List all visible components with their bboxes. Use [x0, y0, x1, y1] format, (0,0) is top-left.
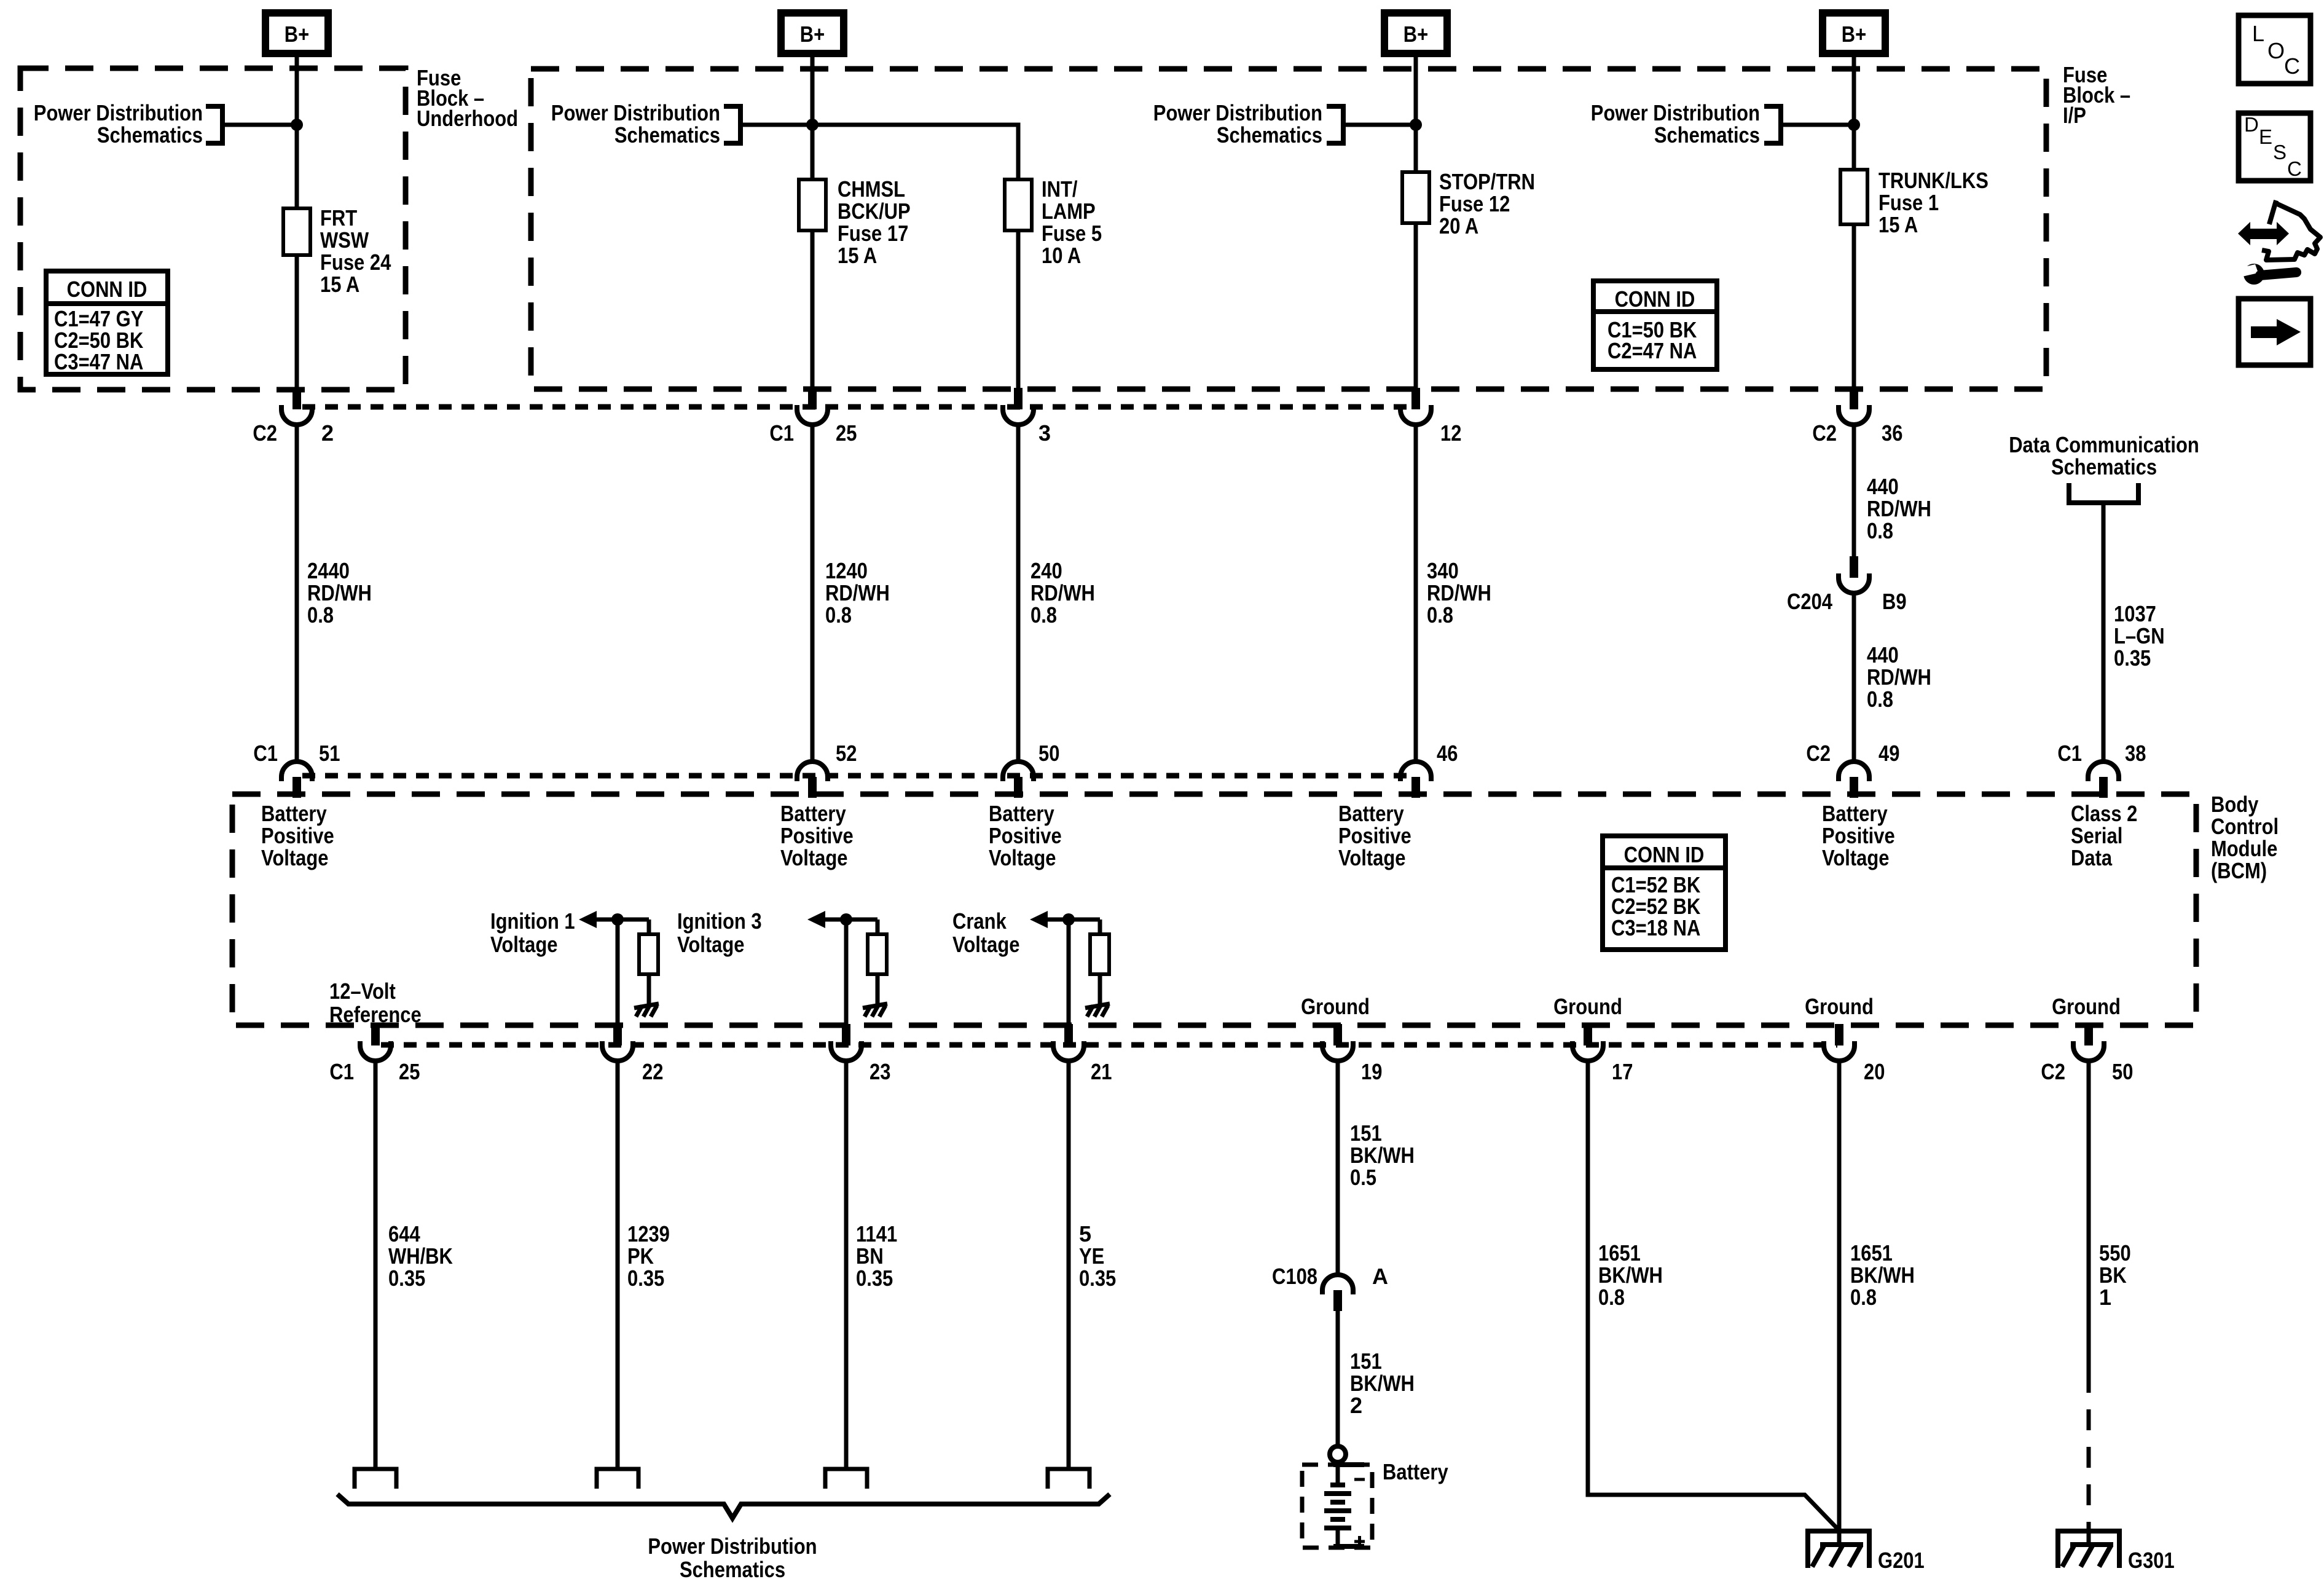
- svg-text:(BCM): (BCM): [2211, 858, 2267, 883]
- svg-text:BN: BN: [856, 1243, 884, 1269]
- svg-text:1651: 1651: [1598, 1240, 1641, 1266]
- svg-text:WH/BK: WH/BK: [388, 1243, 453, 1269]
- svg-text:Positive: Positive: [1338, 823, 1411, 848]
- svg-text:Positive: Positive: [780, 823, 854, 848]
- svg-text:340: 340: [1427, 558, 1459, 583]
- svg-text:C1: C1: [253, 741, 278, 766]
- svg-text:Positive: Positive: [1822, 823, 1895, 848]
- svg-text:151: 151: [1350, 1349, 1382, 1374]
- svg-text:Positive: Positive: [989, 823, 1062, 848]
- svg-text:22: 22: [642, 1059, 663, 1084]
- svg-text:RD/WH: RD/WH: [825, 580, 890, 605]
- svg-text:B9: B9: [1882, 589, 1907, 614]
- svg-text:12: 12: [1440, 420, 1461, 446]
- svg-text:Body: Body: [2211, 792, 2258, 817]
- svg-text:Ground: Ground: [2052, 994, 2121, 1019]
- svg-text:2: 2: [321, 420, 334, 446]
- svg-text:Voltage: Voltage: [780, 845, 848, 870]
- svg-text:Module: Module: [2211, 836, 2277, 861]
- svg-text:BCK/UP: BCK/UP: [838, 199, 911, 224]
- svg-text:17: 17: [1612, 1059, 1633, 1084]
- svg-text:CONN ID: CONN ID: [1624, 842, 1705, 867]
- svg-text:240: 240: [1030, 558, 1062, 583]
- svg-text:50: 50: [2112, 1059, 2133, 1084]
- svg-text:1239: 1239: [627, 1221, 670, 1246]
- svg-text:Ground: Ground: [1301, 994, 1370, 1019]
- svg-text:Power Distribution: Power Distribution: [648, 1534, 817, 1559]
- svg-text:C: C: [2287, 157, 2302, 180]
- svg-text:WSW: WSW: [320, 227, 369, 253]
- svg-text:RD/WH: RD/WH: [1867, 664, 1931, 690]
- svg-text:Ignition 1: Ignition 1: [490, 908, 575, 934]
- svg-text:0.8: 0.8: [1030, 602, 1057, 628]
- svg-text:2: 2: [1350, 1393, 1362, 1418]
- svg-text:51: 51: [319, 741, 340, 766]
- svg-text:440: 440: [1867, 642, 1899, 667]
- svg-text:RD/WH: RD/WH: [307, 580, 372, 605]
- svg-text:2440: 2440: [307, 558, 350, 583]
- svg-text:Power Distribution: Power Distribution: [1153, 100, 1322, 125]
- svg-text:Schematics: Schematics: [2051, 454, 2157, 479]
- svg-text:550: 550: [2099, 1240, 2131, 1266]
- svg-text:Battery: Battery: [1383, 1459, 1448, 1484]
- svg-text:B+: B+: [285, 22, 309, 47]
- svg-text:Schematics: Schematics: [1217, 122, 1322, 148]
- svg-text:Crank: Crank: [952, 908, 1007, 934]
- svg-text:CHMSL: CHMSL: [838, 176, 905, 202]
- svg-text:L–GN: L–GN: [2114, 623, 2165, 648]
- svg-text:C2: C2: [2041, 1059, 2065, 1084]
- svg-text:0.8: 0.8: [307, 602, 334, 628]
- svg-text:19: 19: [1361, 1059, 1382, 1084]
- svg-text:BK/WH: BK/WH: [1850, 1262, 1915, 1288]
- svg-text:C1: C1: [329, 1059, 354, 1084]
- svg-text:C3=47 NA: C3=47 NA: [54, 349, 143, 374]
- svg-text:Fuse 24: Fuse 24: [320, 250, 391, 275]
- svg-text:FRT: FRT: [320, 205, 357, 230]
- svg-text:151: 151: [1350, 1120, 1382, 1146]
- svg-text:O: O: [2267, 38, 2285, 63]
- svg-text:46: 46: [1437, 741, 1458, 766]
- svg-text:Battery: Battery: [261, 801, 327, 826]
- svg-text:I/P: I/P: [2063, 103, 2086, 128]
- svg-text:Control: Control: [2211, 814, 2279, 839]
- svg-text:C108: C108: [1272, 1264, 1317, 1289]
- svg-text:0.35: 0.35: [856, 1266, 893, 1291]
- svg-text:YE: YE: [1079, 1243, 1104, 1269]
- svg-text:Battery: Battery: [989, 801, 1054, 826]
- svg-text:Power Distribution: Power Distribution: [551, 100, 720, 125]
- svg-text:B+: B+: [1842, 22, 1866, 47]
- svg-text:STOP/TRN: STOP/TRN: [1439, 169, 1535, 194]
- svg-text:G201: G201: [1878, 1548, 1925, 1573]
- svg-text:0.8: 0.8: [1850, 1285, 1877, 1310]
- svg-text:10 A: 10 A: [1042, 243, 1081, 268]
- svg-text:Voltage: Voltage: [1822, 845, 1890, 870]
- svg-text:Fuse 1: Fuse 1: [1878, 190, 1939, 215]
- svg-text:Voltage: Voltage: [261, 845, 329, 870]
- svg-text:0.8: 0.8: [1598, 1285, 1625, 1310]
- svg-text:Voltage: Voltage: [677, 932, 745, 957]
- svg-text:Power Distribution: Power Distribution: [1591, 100, 1760, 125]
- svg-text:25: 25: [399, 1059, 420, 1084]
- svg-text:Fuse 17: Fuse 17: [838, 221, 908, 246]
- svg-text:D: D: [2244, 113, 2259, 136]
- svg-text:BK/WH: BK/WH: [1350, 1143, 1415, 1168]
- svg-text:RD/WH: RD/WH: [1427, 580, 1491, 605]
- svg-text:Reference: Reference: [329, 1002, 422, 1027]
- svg-text:LAMP: LAMP: [1042, 199, 1096, 224]
- svg-text:0.8: 0.8: [1427, 602, 1453, 628]
- svg-text:Voltage: Voltage: [989, 845, 1056, 870]
- svg-text:15 A: 15 A: [1878, 212, 1918, 237]
- svg-text:L: L: [2252, 21, 2264, 46]
- svg-text:C1: C1: [2057, 741, 2082, 766]
- svg-text:644: 644: [388, 1221, 420, 1246]
- svg-text:1037: 1037: [2114, 601, 2156, 626]
- svg-text:0.8: 0.8: [1867, 518, 1893, 543]
- svg-text:Schematics: Schematics: [680, 1557, 785, 1579]
- svg-text:C1: C1: [769, 420, 794, 446]
- svg-text:C: C: [2284, 53, 2300, 79]
- svg-text:Fuse 5: Fuse 5: [1042, 221, 1102, 246]
- svg-text:CONN ID: CONN ID: [67, 277, 147, 302]
- svg-text:BK/WH: BK/WH: [1598, 1262, 1663, 1288]
- svg-text:Voltage: Voltage: [490, 932, 558, 957]
- svg-text:Serial: Serial: [2071, 823, 2122, 848]
- svg-text:TRUNK/LKS: TRUNK/LKS: [1878, 168, 1988, 193]
- svg-text:E: E: [2259, 125, 2272, 148]
- svg-text:0.35: 0.35: [1079, 1266, 1116, 1291]
- svg-text:0.8: 0.8: [825, 602, 852, 628]
- svg-text:49: 49: [1878, 741, 1899, 766]
- svg-text:52: 52: [836, 741, 857, 766]
- svg-text:Schematics: Schematics: [1654, 122, 1760, 148]
- svg-text:38: 38: [2125, 741, 2146, 766]
- svg-text:Power Distribution: Power Distribution: [34, 100, 203, 125]
- svg-text:0.8: 0.8: [1867, 687, 1893, 712]
- svg-text:Schematics: Schematics: [614, 122, 720, 148]
- svg-text:Ground: Ground: [1553, 994, 1622, 1019]
- svg-text:0.35: 0.35: [388, 1266, 425, 1291]
- svg-text:Underhood: Underhood: [417, 106, 518, 131]
- svg-text:Ground: Ground: [1805, 994, 1874, 1019]
- svg-text:C3=18 NA: C3=18 NA: [1611, 915, 1700, 940]
- svg-text:1651: 1651: [1850, 1240, 1893, 1266]
- svg-text:BK/WH: BK/WH: [1350, 1371, 1415, 1396]
- svg-text:20 A: 20 A: [1439, 213, 1478, 238]
- svg-text:Class 2: Class 2: [2071, 801, 2137, 826]
- svg-text:23: 23: [870, 1059, 890, 1084]
- svg-text:12–Volt: 12–Volt: [329, 979, 396, 1004]
- svg-text:5: 5: [1079, 1221, 1091, 1246]
- svg-text:440: 440: [1867, 474, 1899, 499]
- svg-text:C2: C2: [1812, 420, 1837, 446]
- svg-text:G301: G301: [2128, 1548, 2175, 1573]
- svg-text:Voltage: Voltage: [952, 932, 1020, 957]
- svg-text:Schematics: Schematics: [97, 122, 203, 148]
- svg-text:3: 3: [1038, 420, 1051, 446]
- svg-text:Data: Data: [2071, 845, 2113, 870]
- svg-text:Data Communication: Data Communication: [2009, 432, 2199, 457]
- svg-text:15 A: 15 A: [320, 272, 359, 297]
- svg-text:Battery: Battery: [780, 801, 846, 826]
- svg-text:Ignition 3: Ignition 3: [677, 908, 762, 934]
- svg-text:Fuse 12: Fuse 12: [1439, 191, 1510, 216]
- svg-text:Positive: Positive: [261, 823, 334, 848]
- svg-text:0.35: 0.35: [627, 1266, 664, 1291]
- svg-text:C204: C204: [1787, 589, 1832, 614]
- svg-text:1240: 1240: [825, 558, 868, 583]
- svg-text:C2=47 NA: C2=47 NA: [1608, 338, 1697, 363]
- svg-text:Voltage: Voltage: [1338, 845, 1406, 870]
- svg-text:C2: C2: [1806, 741, 1831, 766]
- svg-text:0.35: 0.35: [2114, 645, 2151, 671]
- svg-text:C2: C2: [253, 420, 277, 446]
- svg-text:25: 25: [836, 420, 857, 446]
- svg-text:15 A: 15 A: [838, 243, 877, 268]
- svg-text:Battery: Battery: [1822, 801, 1888, 826]
- svg-text:PK: PK: [627, 1243, 654, 1269]
- svg-text:A: A: [1372, 1264, 1388, 1289]
- svg-text:36: 36: [1882, 420, 1902, 446]
- svg-text:B+: B+: [800, 22, 825, 47]
- svg-text:RD/WH: RD/WH: [1030, 580, 1095, 605]
- svg-text:50: 50: [1038, 741, 1059, 766]
- svg-text:20: 20: [1864, 1059, 1885, 1084]
- svg-text:BK: BK: [2099, 1262, 2127, 1288]
- svg-text:S: S: [2273, 141, 2287, 163]
- svg-text:INT/: INT/: [1042, 176, 1078, 202]
- svg-text:21: 21: [1091, 1059, 1112, 1084]
- svg-text:1: 1: [2099, 1285, 2111, 1310]
- svg-text:0.5: 0.5: [1350, 1165, 1376, 1190]
- svg-text:B+: B+: [1403, 22, 1428, 47]
- svg-text:CONN ID: CONN ID: [1615, 286, 1695, 312]
- svg-text:1141: 1141: [856, 1221, 897, 1246]
- svg-text:Battery: Battery: [1338, 801, 1404, 826]
- svg-text:RD/WH: RD/WH: [1867, 496, 1931, 521]
